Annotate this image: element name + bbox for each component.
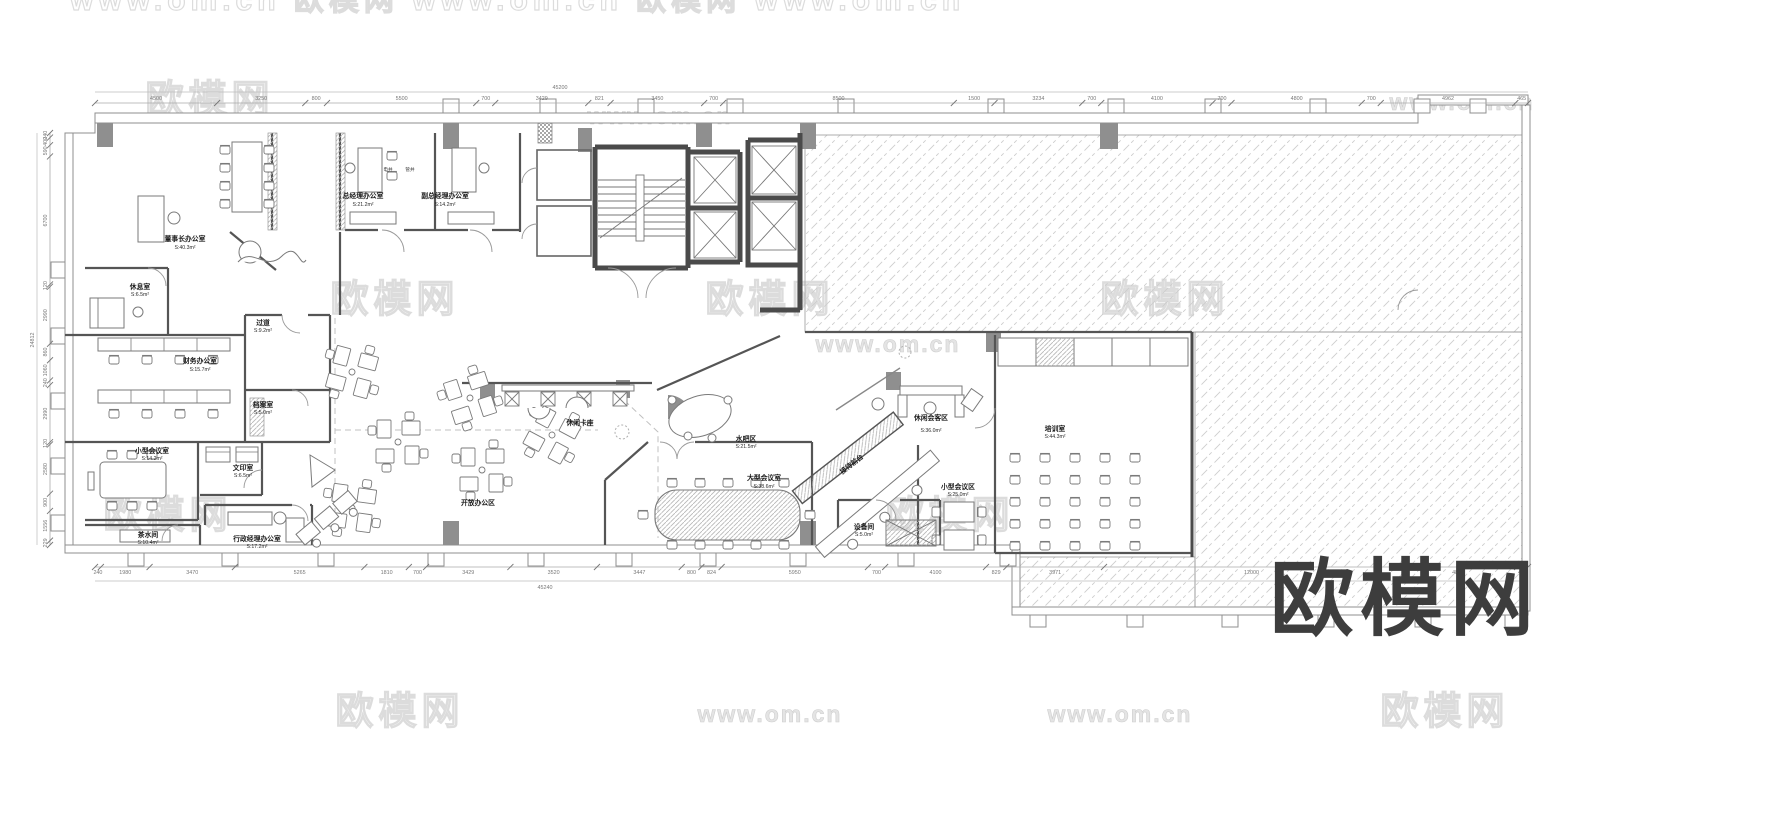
svg-text:5950: 5950 xyxy=(789,570,801,576)
svg-text:2990: 2990 xyxy=(43,408,49,420)
room-area: S:38.6m² xyxy=(753,484,774,490)
room-area: S:14.2m² xyxy=(141,456,162,462)
svg-text:3447: 3447 xyxy=(633,570,645,576)
svg-text:120: 120 xyxy=(43,281,49,290)
svg-text:240: 240 xyxy=(43,378,49,387)
svg-text:3429: 3429 xyxy=(536,96,548,102)
room-area: S:10.4m² xyxy=(137,540,158,546)
room-label-small-meeting-room: 小型会议室 xyxy=(134,446,169,455)
svg-text:4962: 4962 xyxy=(1442,96,1454,102)
room-area: S:6.5m² xyxy=(234,473,252,479)
svg-text:45240: 45240 xyxy=(538,585,553,591)
shaft-room xyxy=(537,150,591,200)
svg-text:6700: 6700 xyxy=(43,214,49,226)
svg-text:1980: 1980 xyxy=(119,570,131,576)
svg-text:400: 400 xyxy=(43,137,49,146)
svg-text:3429: 3429 xyxy=(462,570,474,576)
svg-text:2580: 2580 xyxy=(43,463,49,475)
room-label-pantry: 茶水间 xyxy=(137,530,159,539)
shaft-label-pipe: 管井 xyxy=(405,166,415,173)
svg-text:3470: 3470 xyxy=(186,570,198,576)
floor-plan-svg: www.om.cn 欧模网 www.om.cn 欧模网 www.om.cn 欧模… xyxy=(0,0,1766,815)
room-area: S:14.2m² xyxy=(434,202,455,208)
stair-treads xyxy=(598,175,685,241)
svg-text:1810: 1810 xyxy=(381,570,393,576)
svg-text:3971: 3971 xyxy=(1049,570,1061,576)
room-area: S:40.3m² xyxy=(174,245,195,251)
room-area: S:44.3m² xyxy=(1044,434,1065,440)
room-label-leisure-booth: 休闲卡座 xyxy=(565,418,593,427)
shaft-label-electric: 电井 xyxy=(383,166,393,173)
svg-text:3520: 3520 xyxy=(548,570,560,576)
room-label-finance-office: 财务办公室 xyxy=(182,356,217,365)
room-label-equipment-room: 设备间 xyxy=(854,522,875,531)
svg-text:120: 120 xyxy=(43,439,49,448)
svg-text:4500: 4500 xyxy=(150,96,162,102)
svg-text:700: 700 xyxy=(481,96,490,102)
room-label-admin-manager-office: 行政经理办公室 xyxy=(232,534,281,543)
floor-plan-canvas: www.om.cn 欧模网 www.om.cn 欧模网 www.om.cn 欧模… xyxy=(0,0,1766,815)
svg-text:700: 700 xyxy=(413,570,422,576)
room-label-large-conference: 大型会议室 xyxy=(747,473,781,482)
svg-text:2990: 2990 xyxy=(43,309,49,321)
room-label-rest-room: 休息室 xyxy=(129,282,151,291)
room-area: S:36.0m² xyxy=(920,428,941,434)
svg-text:3450: 3450 xyxy=(651,96,663,102)
svg-text:229: 229 xyxy=(43,538,49,547)
room-area: S:6.5m² xyxy=(131,292,149,298)
svg-text:1500: 1500 xyxy=(968,96,980,102)
room-area: S:21.5m² xyxy=(735,444,756,450)
svg-text:800: 800 xyxy=(312,96,321,102)
room-area: S:5.0m² xyxy=(855,532,873,538)
svg-text:900: 900 xyxy=(43,498,49,507)
svg-text:821: 821 xyxy=(595,96,604,102)
svg-text:700: 700 xyxy=(1087,96,1096,102)
room-area: S:17.2m² xyxy=(246,544,267,550)
room-label-open-office: 开放办公区 xyxy=(461,498,495,507)
room-label-lounge: 休闲会客区 xyxy=(913,413,948,422)
svg-text:860: 860 xyxy=(43,348,49,357)
room-area: S:9.2m² xyxy=(254,328,272,334)
room-label-training-room: 培训室 xyxy=(1045,424,1066,433)
svg-text:700: 700 xyxy=(1367,96,1376,102)
room-label-chairman-office: 董事长办公室 xyxy=(165,234,206,243)
svg-text:1556: 1556 xyxy=(43,520,49,532)
room-area: S:21.2m² xyxy=(352,202,373,208)
svg-text:5500: 5500 xyxy=(396,96,408,102)
watermark-url: www.om.cn xyxy=(697,701,843,727)
svg-text:240: 240 xyxy=(93,570,102,576)
room-label-archive-room: 档案室 xyxy=(252,400,274,409)
room-label-deputy-gm-office: 副总经理办公室 xyxy=(421,191,469,200)
watermark: 欧模网 xyxy=(330,279,459,321)
svg-text:3234: 3234 xyxy=(1032,96,1044,102)
svg-text:4800: 4800 xyxy=(1291,96,1303,102)
svg-text:824: 824 xyxy=(707,570,716,576)
watermark-url: www.om.cn xyxy=(815,331,961,357)
room-area: S:25.0m² xyxy=(947,492,968,498)
watermark: 欧模网 xyxy=(1380,691,1509,733)
svg-text:590: 590 xyxy=(43,146,49,155)
svg-text:8500: 8500 xyxy=(832,96,844,102)
svg-text:465: 465 xyxy=(1517,96,1526,102)
room-area: S:15.7m² xyxy=(189,367,210,373)
svg-text:12000: 12000 xyxy=(1244,570,1259,576)
room-label-corridor: 过道 xyxy=(256,318,270,327)
svg-text:45200: 45200 xyxy=(553,85,568,91)
svg-text:700: 700 xyxy=(1218,96,1227,102)
watermark: www.om.cn 欧模网 www.om.cn 欧模网 www.om.cn xyxy=(69,0,965,17)
svg-text:700: 700 xyxy=(872,570,881,576)
room-area: S:5.0m² xyxy=(254,410,272,416)
room-label-small-meeting-area: 小型会议区 xyxy=(940,482,975,491)
watermark-url: www.om.cn xyxy=(1047,701,1193,727)
svg-text:1060: 1060 xyxy=(43,364,49,376)
svg-text:4100: 4100 xyxy=(930,570,942,576)
svg-text:700: 700 xyxy=(709,96,718,102)
svg-text:3250: 3250 xyxy=(255,96,267,102)
svg-text:829: 829 xyxy=(992,570,1001,576)
watermark: 欧模网 xyxy=(335,691,464,733)
room-label-print-room: 文印室 xyxy=(232,463,254,472)
svg-text:24812: 24812 xyxy=(30,333,36,348)
site-logo: 欧模网 xyxy=(1270,552,1540,646)
shaft-room xyxy=(537,206,591,256)
svg-text:800: 800 xyxy=(687,570,696,576)
room-label-water-bar: 水吧区 xyxy=(735,434,757,443)
svg-text:5265: 5265 xyxy=(294,570,306,576)
room-label-gm-office: 总经理办公室 xyxy=(343,191,384,200)
svg-text:4100: 4100 xyxy=(1151,96,1163,102)
